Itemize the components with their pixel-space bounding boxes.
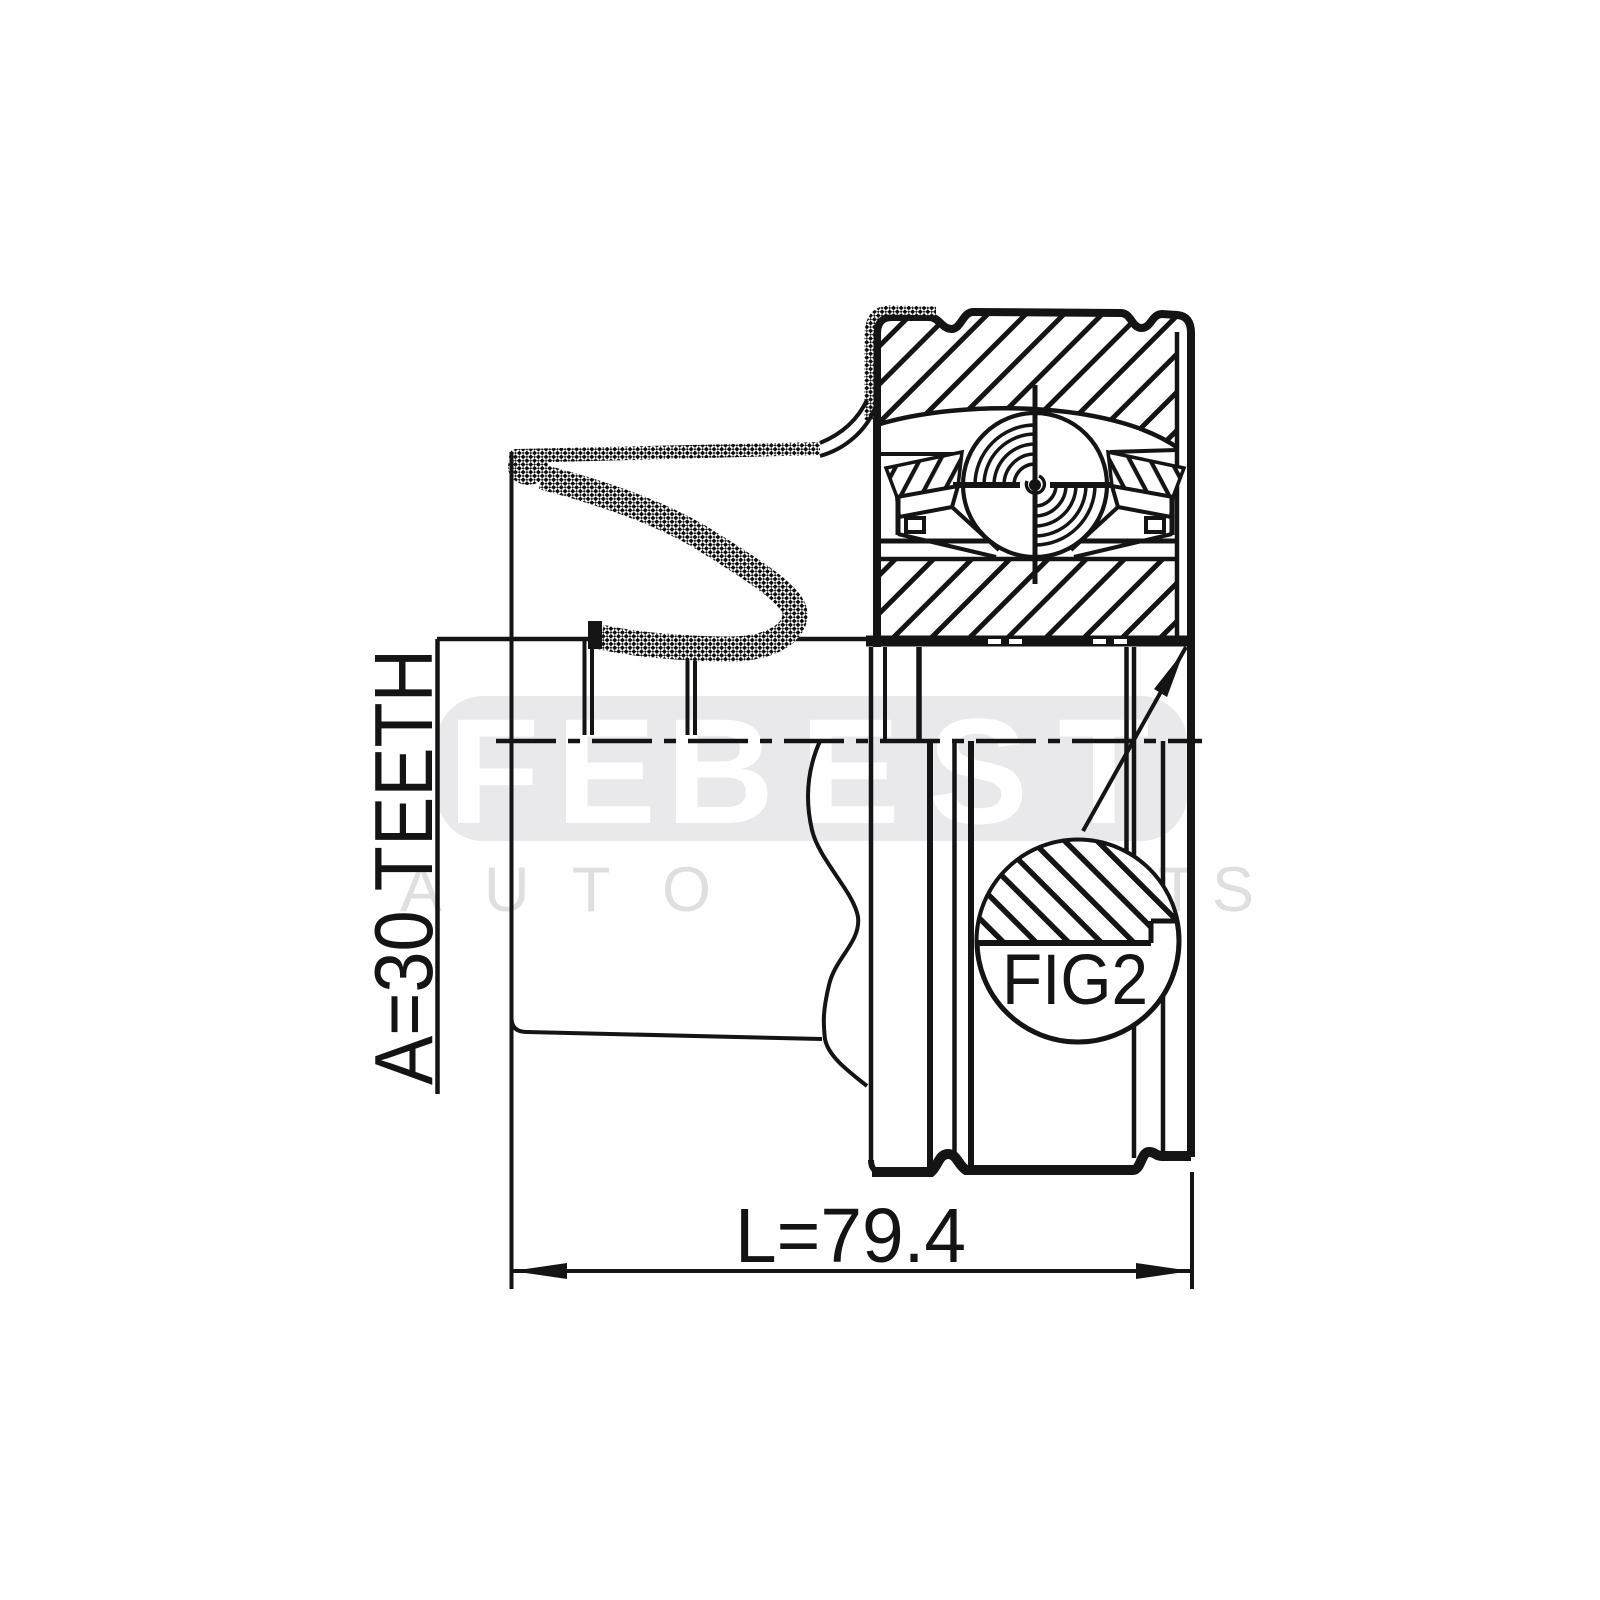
svg-text:L=79.4: L=79.4 bbox=[735, 1193, 966, 1279]
svg-text:B: B bbox=[666, 687, 774, 855]
svg-text:A=30 TEETH: A=30 TEETH bbox=[357, 649, 450, 1085]
svg-text:FIG2: FIG2 bbox=[1002, 941, 1148, 1020]
svg-text:E: E bbox=[556, 687, 656, 855]
svg-text:U: U bbox=[484, 855, 530, 925]
svg-text:O: O bbox=[662, 855, 711, 925]
svg-text:S: S bbox=[1212, 855, 1254, 925]
svg-text:S: S bbox=[928, 687, 1028, 855]
svg-text:T: T bbox=[572, 855, 610, 925]
svg-text:F: F bbox=[448, 687, 540, 855]
